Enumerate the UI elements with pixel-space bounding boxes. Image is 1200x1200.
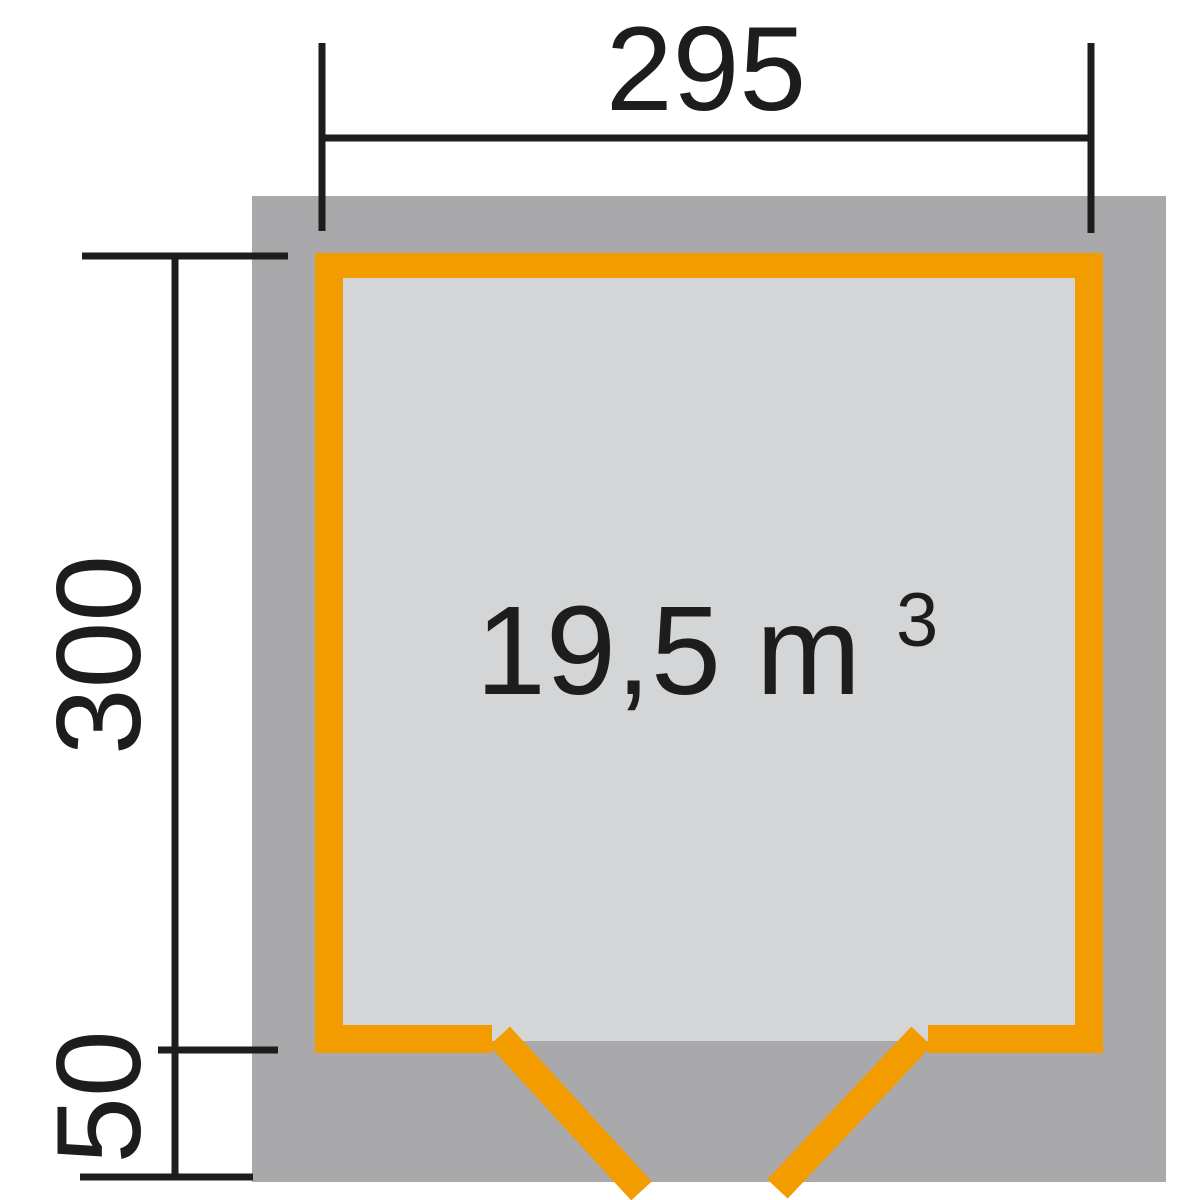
shed-floor-plan-diagram: 295 300 50 19,5 m 3	[0, 0, 1200, 1200]
volume-exponent: 3	[896, 578, 938, 663]
door-opening-gap	[492, 1041, 928, 1053]
door-opening-threshold	[492, 1025, 928, 1041]
volume-label: 19,5 m 3	[476, 578, 939, 721]
width-dimension-label: 295	[606, 2, 806, 136]
volume-value: 19,5 m	[476, 580, 861, 721]
overhang-dimension-label: 50	[32, 1030, 166, 1163]
floor-plan-canvas: 295 300 50 19,5 m 3	[0, 0, 1200, 1200]
depth-dimension-label: 300	[32, 555, 166, 755]
